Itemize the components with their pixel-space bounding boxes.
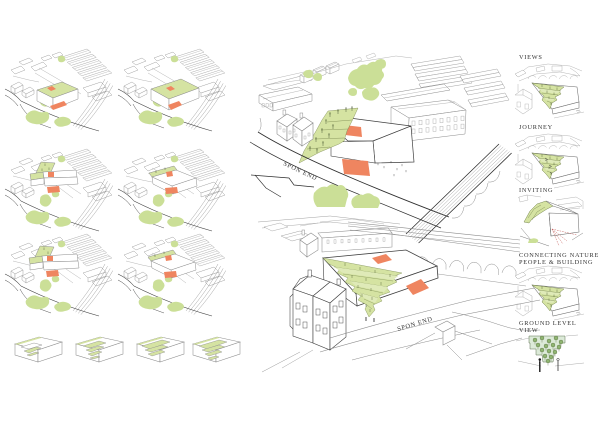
svg-text:CONNECTING NATURE: CONNECTING NATURE (519, 252, 599, 259)
svg-text:INVITING: INVITING (519, 187, 553, 194)
svg-text:VIEW: VIEW (519, 327, 538, 334)
svg-text:JOURNEY: JOURNEY (519, 124, 553, 131)
svg-text:PEOPLE & BUILDING: PEOPLE & BUILDING (519, 259, 593, 266)
svg-text:GROUND LEVEL: GROUND LEVEL (519, 320, 576, 327)
svg-text:VIEWS: VIEWS (519, 54, 543, 61)
